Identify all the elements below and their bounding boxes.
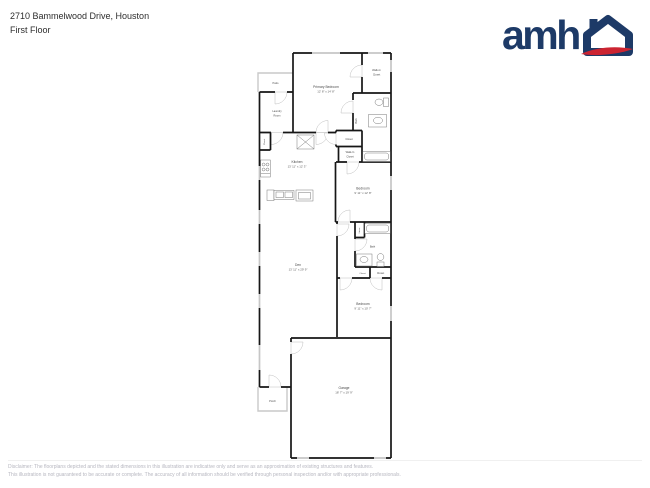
room-label-closet-hall: Closet [345, 137, 353, 141]
room-label-walkin-primary-1: Walk-In [372, 68, 381, 72]
kitchen-counter-icon [267, 190, 313, 201]
room-dims-garage: 18' 7" x 19' 9" [335, 391, 352, 395]
room-label-closet-bedroom-2: Closet [377, 271, 385, 275]
pantry-shelf-icon [297, 135, 314, 149]
room-label-laundry-1: Laundry [272, 109, 282, 113]
page: 2710 Bammelwood Drive, Houston First Flo… [0, 0, 650, 488]
room-label-walkin-primary-2: Closet [373, 73, 381, 77]
room-label-patio: Patio [273, 81, 279, 85]
floor-label: First Floor [10, 23, 149, 37]
bath2-sink-icon [357, 254, 373, 266]
floorplan-svg: Patio Laundry Room Closet Primary Bedroo… [252, 40, 398, 460]
disclaimer: Disclaimer: The floorplans depicted and … [8, 460, 642, 479]
room-label-porch: Porch [269, 399, 276, 403]
room-label-primary-bath: Bath [354, 118, 358, 124]
address-line: 2710 Bammelwood Drive, Houston [10, 9, 149, 23]
amh-logo: amh [502, 8, 642, 56]
disclaimer-line-2: This illustration is not guaranteed to b… [8, 471, 642, 479]
room-label-primary-bedroom: Primary Bedroom [313, 85, 339, 89]
primary-bath-toilet-icon [375, 98, 389, 107]
bath2-toilet-icon [377, 254, 384, 267]
room-label-bedroom-1: Bedroom [356, 187, 370, 191]
stove-icon [261, 160, 271, 177]
room-dims-den: 13' 11" x 29' 9" [289, 268, 308, 272]
disclaimer-line-1: Disclaimer: The floorplans depicted and … [8, 463, 642, 471]
primary-bath-tub-icon [363, 152, 391, 162]
room-dims-bedroom-1: 9' 11" x 12' 8" [354, 191, 371, 195]
room-label-closet-kitchen: Closet [263, 139, 266, 146]
room-label-linen: Linen [359, 227, 361, 233]
bath2-tub-icon [365, 224, 391, 234]
room-label-den: Den [295, 263, 301, 267]
house-icon [587, 19, 629, 52]
room-label-walkin-hall-1: Walk-In [346, 150, 355, 154]
room-label-kitchen: Kitchen [292, 160, 303, 164]
room-label-closet-small: Closet [359, 272, 366, 275]
porch-outline [258, 387, 287, 411]
room-labels: Patio Laundry Room Closet Primary Bedroo… [263, 68, 384, 403]
room-label-walkin-hall-2: Closet [346, 155, 354, 159]
room-label-bedroom-2: Bedroom [356, 302, 370, 306]
room-dims-bedroom-2: 9' 11" x 10' 7" [354, 307, 371, 311]
room-label-garage: Garage [339, 386, 350, 390]
room-dims-primary-bedroom: 12' 8" x 14' 8" [317, 90, 334, 94]
room-label-bath-2: Bath [370, 245, 376, 249]
header: 2710 Bammelwood Drive, Houston First Flo… [10, 9, 149, 37]
logo-wordmark: amh [502, 12, 579, 56]
room-dims-kitchen: 13' 11" x 12' 3" [288, 165, 307, 169]
room-label-laundry-2: Room [274, 114, 281, 118]
primary-bath-sink-icon [369, 115, 387, 128]
